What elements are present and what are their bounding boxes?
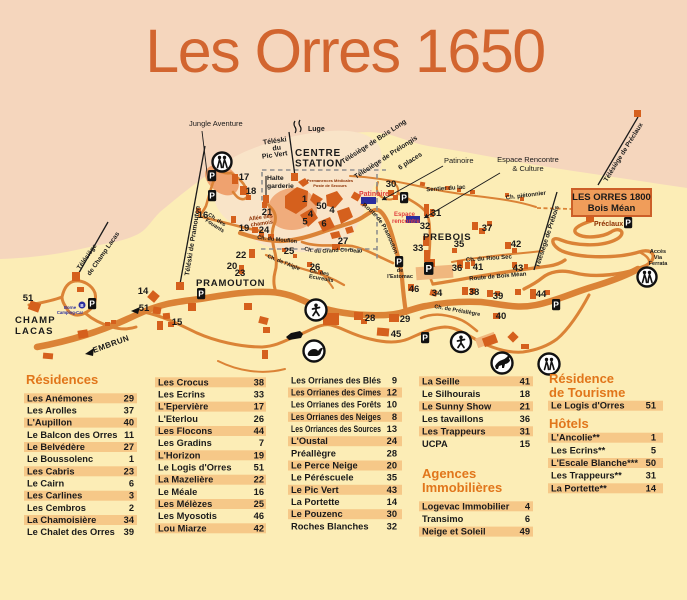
svg-text:Le Péréscuele: Le Péréscuele [291, 473, 354, 483]
svg-text:14: 14 [646, 483, 657, 493]
svg-text:La Portette: La Portette [291, 497, 340, 507]
svg-text:Les Orrianes des Blés: Les Orrianes des Blés [291, 375, 381, 385]
svg-text:Jungle Aventure: Jungle Aventure [189, 119, 243, 128]
svg-text:5: 5 [302, 217, 308, 228]
svg-text:37: 37 [482, 223, 493, 234]
svg-text:Résidences: Résidences [26, 372, 98, 387]
svg-text:Les Orres 1650: Les Orres 1650 [145, 17, 544, 85]
svg-text:La Seille: La Seille [422, 376, 460, 386]
svg-text:9: 9 [392, 375, 397, 385]
svg-text:13: 13 [387, 424, 397, 434]
svg-text:Luge: Luge [308, 126, 325, 133]
svg-text:Le Logis d'Orres: Le Logis d'Orres [551, 401, 625, 411]
svg-text:30: 30 [386, 179, 397, 190]
svg-text:19: 19 [254, 450, 264, 460]
svg-text:Poste de Secours: Poste de Secours [313, 183, 347, 188]
svg-text:17: 17 [254, 402, 264, 412]
svg-text:45: 45 [391, 329, 402, 340]
svg-text:garderie: garderie [267, 183, 294, 190]
svg-text:26: 26 [254, 414, 264, 424]
svg-text:Le Cairn: Le Cairn [27, 479, 65, 489]
svg-text:La Chamoisière: La Chamoisière [27, 515, 96, 525]
svg-text:L'Eterlou: L'Eterlou [158, 414, 198, 424]
svg-text:14: 14 [138, 286, 149, 297]
svg-text:Les Orrianes des Cimes: Les Orrianes des Cimes [291, 388, 381, 398]
svg-text:P: P [209, 191, 215, 201]
svg-text:Halte: Halte [267, 175, 284, 182]
svg-text:Le Silhourais: Le Silhourais [422, 389, 480, 399]
svg-text:41: 41 [473, 262, 484, 273]
svg-text:L'Oustal: L'Oustal [291, 436, 328, 446]
svg-text:Les tavaillons: Les tavaillons [422, 414, 484, 424]
svg-text:1: 1 [302, 194, 308, 205]
svg-text:4: 4 [329, 205, 335, 216]
svg-text:18: 18 [246, 186, 257, 197]
svg-text:10: 10 [387, 400, 397, 410]
svg-text:36: 36 [452, 263, 463, 274]
svg-text:Le Pouzenc: Le Pouzenc [291, 509, 343, 519]
svg-text:50: 50 [646, 458, 656, 468]
svg-text:l'Estomac: l'Estomac [387, 274, 413, 280]
svg-text:Camping-Car: Camping-Car [57, 310, 84, 315]
svg-text:PRAMOUTON: PRAMOUTON [196, 278, 265, 289]
svg-text:Ferrata: Ferrata [649, 261, 669, 267]
svg-text:Transimo: Transimo [422, 514, 464, 524]
svg-text:L'Aupillon: L'Aupillon [27, 418, 72, 428]
svg-text:42: 42 [254, 523, 264, 533]
svg-text:Les Crocus: Les Crocus [158, 377, 209, 387]
svg-text:6: 6 [129, 479, 134, 489]
svg-text:Le Méale: Le Méale [158, 487, 197, 497]
svg-text:Le Perce Neige: Le Perce Neige [291, 461, 358, 471]
svg-text:Les Cembros: Les Cembros [27, 503, 86, 513]
svg-text:Les Gradins: Les Gradins [158, 438, 212, 448]
svg-text:42: 42 [511, 239, 522, 250]
svg-text:P: P [625, 218, 631, 228]
svg-text:37: 37 [124, 406, 134, 416]
svg-text:34: 34 [432, 288, 443, 299]
svg-text:31: 31 [646, 471, 656, 481]
svg-text:29: 29 [124, 393, 134, 403]
svg-text:5: 5 [651, 445, 656, 455]
svg-text:17: 17 [239, 172, 250, 183]
svg-text:La Mazelière: La Mazelière [158, 475, 213, 485]
svg-text:22: 22 [254, 475, 264, 485]
svg-text:P: P [425, 264, 432, 275]
svg-text:La Portette**: La Portette** [551, 483, 607, 493]
svg-text:L'Escale Blanche***: L'Escale Blanche*** [551, 458, 638, 468]
svg-text:16: 16 [254, 487, 264, 497]
svg-text:39: 39 [493, 291, 504, 302]
svg-text:Le Balcon des Orres: Le Balcon des Orres [27, 430, 117, 440]
svg-text:39: 39 [124, 527, 134, 537]
svg-text:Les Anémones: Les Anémones [27, 393, 93, 403]
svg-text:Les Cabris: Les Cabris [27, 466, 75, 476]
svg-text:15: 15 [172, 317, 183, 328]
svg-text:6: 6 [321, 219, 326, 230]
svg-text:P: P [422, 333, 428, 343]
svg-text:27: 27 [124, 442, 134, 452]
svg-text:43: 43 [387, 485, 397, 495]
svg-text:P: P [396, 257, 402, 267]
svg-text:51: 51 [139, 303, 150, 314]
svg-text:1: 1 [129, 454, 134, 464]
svg-text:18: 18 [520, 389, 530, 399]
svg-text:4: 4 [525, 501, 531, 511]
svg-text:Les Ecrins**: Les Ecrins** [551, 445, 606, 455]
svg-text:Les Trappeurs: Les Trappeurs [422, 426, 486, 436]
svg-text:23: 23 [124, 466, 134, 476]
svg-text:29: 29 [400, 314, 411, 325]
svg-text:24: 24 [387, 436, 398, 446]
svg-text:1: 1 [651, 433, 656, 443]
svg-text:L'Horizon: L'Horizon [158, 450, 201, 460]
svg-text:Agences: Agences [422, 466, 476, 481]
svg-text:Le Pic Vert: Le Pic Vert [291, 485, 339, 495]
svg-text:Les Orriances des Sources: Les Orriances des Sources [291, 424, 381, 434]
svg-text:Roches Blanches: Roches Blanches [291, 521, 369, 531]
svg-text:11: 11 [124, 430, 134, 440]
svg-text:35: 35 [387, 473, 397, 483]
svg-text:12: 12 [387, 388, 397, 398]
svg-text:Les Orrianes des Neiges: Les Orrianes des Neiges [291, 412, 381, 422]
svg-text:& Culture: & Culture [512, 164, 543, 173]
svg-text:3: 3 [129, 491, 134, 501]
svg-text:14: 14 [387, 497, 398, 507]
svg-text:L'Epervière: L'Epervière [158, 402, 208, 412]
svg-text:Logevac Immobilier: Logevac Immobilier [422, 501, 510, 511]
svg-text:38: 38 [254, 377, 264, 387]
svg-text:44: 44 [254, 426, 265, 436]
svg-text:4: 4 [308, 209, 314, 220]
svg-text:Les Trappeurs**: Les Trappeurs** [551, 471, 622, 481]
svg-text:33: 33 [413, 243, 424, 254]
svg-text:P: P [89, 299, 95, 309]
svg-text:28: 28 [365, 313, 376, 324]
svg-text:36: 36 [520, 414, 530, 424]
svg-text:32: 32 [420, 221, 431, 232]
svg-text:40: 40 [496, 311, 507, 322]
svg-text:P: P [209, 171, 215, 181]
svg-text:de Tourisme: de Tourisme [549, 385, 625, 400]
svg-text:Espace Rencontre: Espace Rencontre [497, 155, 559, 164]
svg-text:rencontre: rencontre [392, 219, 420, 225]
svg-text:L'Ancolie**: L'Ancolie** [551, 433, 600, 443]
svg-text:Les Myosotis: Les Myosotis [158, 511, 217, 521]
svg-text:32: 32 [387, 521, 397, 531]
svg-text:34: 34 [124, 515, 135, 525]
svg-text:Résidence: Résidence [549, 371, 614, 386]
svg-text:Lou Miarze: Lou Miarze [158, 523, 207, 533]
svg-text:Les Ecrins: Les Ecrins [158, 390, 205, 400]
svg-text:P: P [553, 300, 559, 310]
svg-text:Les Carlines: Les Carlines [27, 491, 82, 501]
svg-text:Le Logis d'Orres: Le Logis d'Orres [158, 463, 232, 473]
svg-text:Hôtels: Hôtels [549, 416, 589, 431]
svg-text:Patinoire: Patinoire [359, 191, 389, 198]
svg-text:CHAMP: CHAMP [15, 315, 56, 326]
svg-text:19: 19 [239, 223, 250, 234]
svg-text:27: 27 [338, 236, 349, 247]
svg-text:33: 33 [254, 390, 264, 400]
svg-text:Préclaux: Préclaux [594, 221, 623, 228]
svg-text:51: 51 [646, 401, 656, 411]
svg-text:Les Mélèzes: Les Mélèzes [158, 499, 212, 509]
svg-text:21: 21 [520, 401, 530, 411]
svg-text:31: 31 [431, 208, 442, 219]
svg-text:15: 15 [520, 439, 530, 449]
svg-text:51: 51 [254, 463, 264, 473]
svg-text:50: 50 [316, 201, 327, 212]
svg-text:UCPA: UCPA [422, 439, 448, 449]
svg-text:P: P [198, 289, 204, 299]
svg-text:49: 49 [520, 527, 530, 537]
svg-text:Les Flocons: Les Flocons [158, 426, 212, 436]
svg-text:44: 44 [536, 289, 547, 300]
svg-text:51: 51 [23, 293, 34, 304]
svg-text:Les Orrianes des Forêts: Les Orrianes des Forêts [291, 400, 381, 410]
svg-text:25: 25 [284, 246, 295, 257]
svg-text:30: 30 [387, 509, 397, 519]
svg-text:CENTRE: CENTRE [295, 148, 341, 159]
svg-text:20: 20 [387, 461, 397, 471]
svg-text:Le Sunny Show: Le Sunny Show [422, 401, 492, 411]
svg-text:STATION: STATION [295, 159, 343, 170]
svg-text:6: 6 [525, 514, 530, 524]
svg-text:41: 41 [520, 376, 530, 386]
svg-text:PREBOIS: PREBOIS [423, 232, 471, 243]
svg-text:Espace: Espace [394, 212, 416, 218]
svg-text:LACAS: LACAS [15, 326, 54, 337]
svg-text:Les Arolles: Les Arolles [27, 406, 77, 416]
svg-text:2: 2 [129, 503, 134, 513]
svg-text:46: 46 [409, 284, 420, 295]
svg-text:40: 40 [124, 418, 134, 428]
svg-text:P: P [401, 193, 407, 203]
svg-text:46: 46 [254, 511, 264, 521]
svg-text:31: 31 [520, 426, 530, 436]
svg-text:Neige et Soleil: Neige et Soleil [422, 527, 486, 537]
svg-text:7: 7 [259, 438, 264, 448]
svg-text:Immobilières: Immobilières [422, 480, 502, 495]
svg-text:28: 28 [387, 448, 397, 458]
svg-text:Le Boussolenc: Le Boussolenc [27, 454, 93, 464]
svg-text:Patinoire: Patinoire [444, 156, 474, 165]
svg-text:22: 22 [236, 250, 247, 261]
svg-text:Bois Méan: Bois Méan [588, 203, 636, 214]
svg-text:Préallègre: Préallègre [291, 448, 336, 458]
svg-text:Le Belvédère: Le Belvédère [27, 442, 85, 452]
svg-text:8: 8 [392, 412, 397, 422]
svg-text:25: 25 [254, 499, 264, 509]
svg-text:38: 38 [469, 287, 480, 298]
svg-text:LES ORRES 1800: LES ORRES 1800 [572, 192, 651, 203]
svg-text:Le Chalet des Orres: Le Chalet des Orres [27, 527, 115, 537]
